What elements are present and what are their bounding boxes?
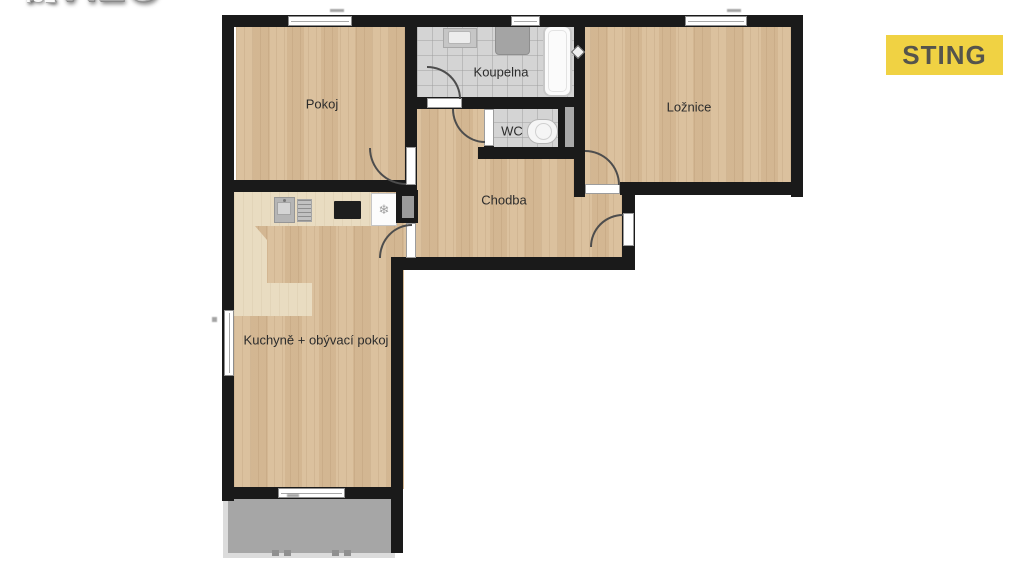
window-koupelna [511, 16, 540, 26]
sink-basin [448, 31, 471, 44]
window-pokoj [288, 16, 352, 26]
dimension-mark [212, 317, 217, 322]
window-pane-line [514, 21, 537, 22]
floorplan-canvas: ❄ Pokoj Koupelna WC Ložnice Chodba Kuchy… [0, 0, 1024, 576]
cooktop [334, 201, 361, 219]
door-threshold-koupelna [427, 98, 462, 108]
door-threshold-entry [623, 213, 634, 246]
door-threshold-loznice [585, 184, 620, 194]
agency-badge: STING [886, 35, 1003, 75]
wall-wc-bottom [478, 147, 585, 159]
window-loznice [685, 16, 747, 26]
room-label-kuchyne: Kuchyně + obývací pokoj [244, 333, 389, 348]
balcony-railing-bottom [223, 553, 395, 558]
bathroom-sink [443, 28, 477, 48]
balcony-post [344, 550, 351, 556]
wall-pokoj-kitchen [222, 180, 417, 192]
toilet [527, 119, 558, 144]
wall-right-loznice [791, 15, 803, 197]
fridge: ❄ [371, 193, 397, 226]
dimension-mark [330, 9, 344, 12]
window-living [224, 310, 234, 376]
dimension-mark [287, 494, 299, 497]
room-label-koupelna: Koupelna [474, 65, 529, 80]
snowflake-icon: ❄ [372, 194, 396, 225]
bathtub [543, 25, 572, 97]
room-label-pokoj: Pokoj [306, 97, 339, 112]
balcony-post [332, 550, 339, 556]
dimension-mark [727, 9, 741, 12]
balcony-floor [227, 497, 391, 554]
wall-living-right [391, 257, 403, 553]
washing-machine [495, 24, 530, 55]
kitchen-sink [274, 197, 295, 223]
door-threshold-wc [484, 109, 494, 146]
room-label-loznice: Ložnice [667, 100, 712, 115]
balcony-railing-left [223, 495, 228, 558]
wall-loznice-bottom [620, 182, 803, 195]
shaft-inset-kitchen [402, 196, 414, 218]
room-label-wc: WC [501, 124, 523, 139]
wall-loznice-left [574, 15, 585, 197]
window-pane-line [229, 313, 230, 373]
toilet-bowl [535, 123, 552, 140]
door-threshold-pokoj [406, 147, 416, 185]
site-logo-suffix: .cz [25, 0, 56, 6]
window-pane-line [291, 21, 349, 22]
wall-left [222, 15, 234, 501]
faucet-dot [283, 199, 286, 202]
kitchen-sink-basin [277, 202, 291, 215]
wall-chodba-bottom [396, 257, 635, 270]
window-pane-line [688, 21, 744, 22]
room-label-chodba: Chodba [481, 193, 527, 208]
bathtub-rim [548, 30, 567, 92]
balcony-post [284, 550, 291, 556]
dish-drainer [297, 199, 312, 222]
balcony-post [272, 550, 279, 556]
